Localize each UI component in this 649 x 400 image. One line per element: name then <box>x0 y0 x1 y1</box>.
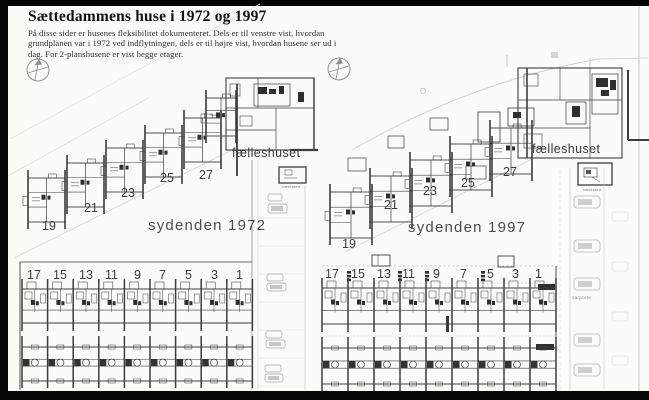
house-number-1997-23: 23 <box>423 185 437 198</box>
house-number-1972-23: 23 <box>121 187 135 200</box>
house-number-1972-5: 5 <box>185 269 192 282</box>
house-number-1997-27: 27 <box>503 166 517 179</box>
house-number-1997-21: 21 <box>384 199 398 212</box>
common-house-label-1997: fælleshuset <box>532 143 600 156</box>
house-number-1972-13: 13 <box>79 269 93 282</box>
house-number-1997-7: 7 <box>460 268 467 281</box>
outbuilding-label-1997: værksted <box>583 188 601 192</box>
house-number-1997-25: 25 <box>461 177 475 190</box>
house-number-1997-3: 3 <box>512 268 519 281</box>
house-number-1997-11: 11 <box>402 268 415 281</box>
page-background <box>8 6 649 391</box>
intro-line-1: På disse sider er husenes fleksibilitet … <box>28 28 336 38</box>
common-house-label-1972: fælleshuset <box>232 147 300 160</box>
house-number-1972-7: 7 <box>159 269 166 282</box>
house-number-1972-21: 21 <box>84 202 98 215</box>
carport-label-1997: carporte <box>572 296 591 301</box>
house-number-1997-13: 13 <box>377 268 391 281</box>
house-number-1972-1: 1 <box>236 269 243 282</box>
house-number-1972-9: 9 <box>134 269 141 282</box>
outbuilding-label-1972: værksted <box>282 185 300 189</box>
area-label-1997: sydenden 1997 <box>408 220 526 235</box>
house-number-1972-25: 25 <box>160 172 174 185</box>
house-number-1972-11: 11 <box>105 269 118 282</box>
house-number-1997-1: 1 <box>535 268 542 281</box>
intro-paragraph: På disse sider er husenes fleksibilitet … <box>28 28 336 59</box>
area-label-1972: sydenden 1972 <box>148 218 266 233</box>
house-number-1997-19: 19 <box>342 238 356 251</box>
house-number-1972-27: 27 <box>199 169 213 182</box>
scanned-book-page: { "header": { "title": "Sættedammens hus… <box>0 0 649 400</box>
intro-line-2: grundplanen var i 1972 ved indflytningen… <box>28 38 336 48</box>
house-number-1972-3: 3 <box>211 269 218 282</box>
intro-line-3: dag. For 2-planshusene er vist begge eta… <box>28 49 336 59</box>
house-number-1997-9: 9 <box>433 268 440 281</box>
house-number-1997-15: 15 <box>351 268 365 281</box>
house-number-1972-15: 15 <box>53 269 67 282</box>
house-number-1972-17: 17 <box>27 269 41 282</box>
house-number-1997-5: 5 <box>487 268 494 281</box>
page-title: Sættedammens huse i 1972 og 1997 <box>28 9 266 25</box>
house-number-1997-17: 17 <box>325 268 339 281</box>
house-number-1972-19: 19 <box>42 220 56 233</box>
